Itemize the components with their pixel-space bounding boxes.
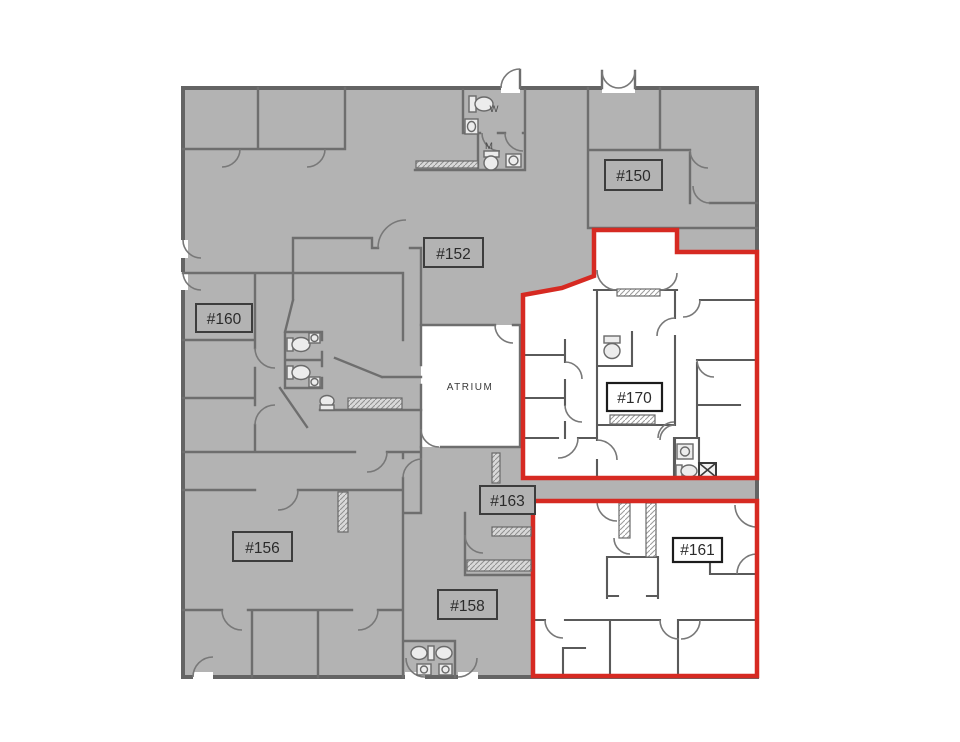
shaft-hatch (619, 503, 630, 538)
suite-label-160: #160 (196, 304, 252, 332)
sink-icon (417, 664, 431, 675)
toilet-icon (484, 151, 499, 170)
suite-label-152: #152 (424, 238, 483, 267)
suite-161-area (533, 501, 757, 676)
toilet-icon (604, 336, 620, 359)
counter (348, 398, 402, 409)
womens-restroom-label: W (490, 104, 499, 115)
suite-label-163: #163 (480, 486, 535, 514)
floor-plan: #170 #161 (0, 0, 960, 742)
suite-150-number: #150 (616, 168, 651, 185)
toilet-icon (287, 338, 310, 352)
toilet-icon (287, 366, 310, 380)
toilet-icon (676, 465, 697, 477)
shaft-x-icon (699, 463, 716, 477)
suite-156-number: #156 (245, 540, 279, 557)
suite-158-number: #158 (450, 598, 484, 615)
suite-label-170: #170 (607, 383, 662, 411)
suite-160-number: #160 (207, 311, 242, 328)
suite-label-158: #158 (438, 590, 497, 619)
sink-icon (506, 154, 521, 167)
sink-icon (465, 119, 478, 134)
suite-152-number: #152 (436, 246, 470, 263)
counter (338, 492, 348, 532)
sink-icon (677, 444, 693, 459)
sink-icon (309, 333, 320, 343)
toilet-icon (320, 396, 334, 411)
shaft-hatch (646, 503, 656, 557)
floor-plan-page: #170 #161 (0, 0, 960, 742)
counter (416, 161, 478, 168)
sink-icon (439, 664, 452, 675)
entry-counter (617, 289, 660, 296)
sink-icon (411, 646, 452, 660)
suite-label-161: #161 (673, 538, 722, 562)
suite-label-156: #156 (233, 532, 292, 561)
suite-170-number: #170 (617, 390, 652, 407)
counter (492, 453, 500, 483)
casework-counter (610, 415, 655, 424)
counter (467, 560, 531, 571)
suite-161-number: #161 (680, 542, 714, 559)
sink-icon (309, 377, 320, 387)
counter (492, 527, 531, 536)
atrium-label: ATRIUM (447, 382, 494, 393)
mens-restroom-label: M (485, 141, 493, 152)
suite-163-number: #163 (490, 493, 524, 510)
suite-label-150: #150 (605, 160, 662, 190)
